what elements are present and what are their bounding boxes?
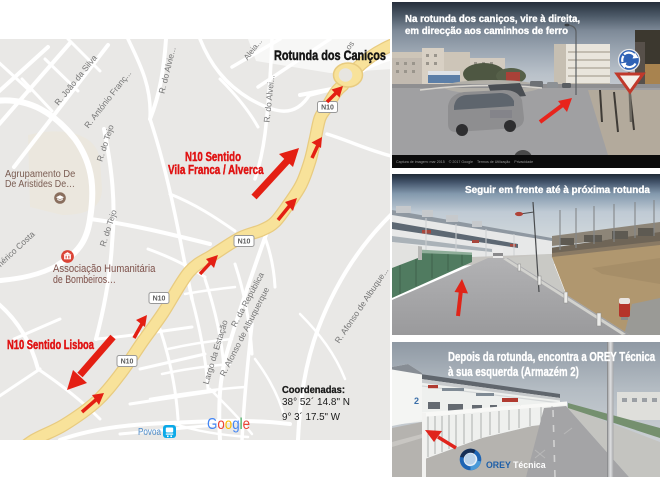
svg-text:N10: N10	[238, 239, 251, 246]
svg-text:2: 2	[414, 396, 419, 406]
svg-text:N10: N10	[321, 105, 334, 112]
svg-text:N10: N10	[121, 359, 134, 366]
svg-text:N10: N10	[153, 296, 166, 303]
svg-text:Captura de imagem: mar 2015: Captura de imagem: mar 2015 © 2017 Googl…	[396, 160, 533, 164]
